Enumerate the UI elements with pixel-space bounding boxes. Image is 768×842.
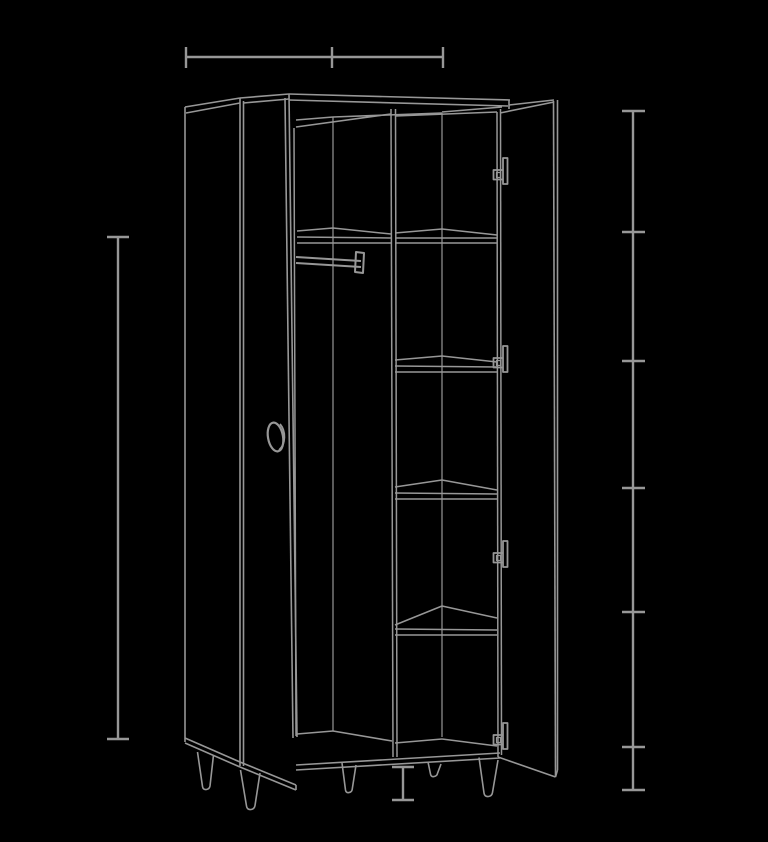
- door-handle-4-segment: [503, 723, 508, 749]
- shelf-4-segment: [395, 629, 497, 630]
- clothes-rail-segment: [355, 252, 364, 273]
- left-side-and-door-segment: [240, 94, 289, 98]
- right-door-segment: [509, 100, 554, 105]
- carcass-top-segment: [442, 107, 502, 112]
- shelf-top-left: [297, 228, 391, 243]
- right-door-segment: [498, 757, 556, 777]
- base-and-floor-segment: [297, 731, 333, 734]
- clothes-rail-segment: [296, 263, 361, 267]
- left-side-and-door-segment: [244, 99, 290, 103]
- door-handle-2-segment: [497, 361, 501, 366]
- left-side-and-door-segment: [186, 103, 240, 113]
- dimension-right-scale: [622, 111, 645, 790]
- shelf-1: [395, 229, 497, 243]
- shelf-3-segment: [395, 493, 497, 494]
- shelf-top-left-segment: [297, 237, 391, 238]
- clothes-rail-segment: [296, 257, 361, 261]
- door-knob: [266, 421, 286, 452]
- interior-verticals-segment: [294, 128, 296, 736]
- base-and-floor-segment: [333, 731, 392, 741]
- dimension-top-width: [186, 47, 443, 68]
- shelf-4-segment: [395, 606, 497, 625]
- left-side-and-door: [185, 94, 297, 790]
- interior-verticals-segment: [396, 109, 398, 757]
- carcass-top-segment: [289, 100, 508, 106]
- carcass-top-segment: [296, 117, 333, 120]
- interior-verticals: [294, 109, 502, 757]
- door-handle-1-segment: [497, 173, 501, 178]
- dimension-left-height: [107, 237, 129, 739]
- legs-segment: [198, 752, 214, 790]
- legs-segment: [479, 758, 498, 797]
- legs-segment: [241, 770, 261, 810]
- left-side-and-door-segment: [185, 98, 240, 107]
- right-door-segment: [554, 101, 556, 776]
- carcass-top: [289, 94, 510, 127]
- shelf-2: [395, 356, 497, 372]
- door-handle-4: [494, 723, 508, 749]
- left-side-and-door-segment: [240, 767, 296, 790]
- base-and-floor: [296, 731, 500, 770]
- interior-verticals-segment: [391, 109, 393, 757]
- carcass-top-segment: [289, 94, 510, 100]
- shelf-2-segment: [395, 366, 497, 367]
- shelf-3: [395, 480, 497, 499]
- door-handle-2-segment: [503, 346, 508, 372]
- door-handle-3-segment: [497, 556, 501, 561]
- clothes-rail: [296, 252, 364, 273]
- door-handle-3-segment: [503, 541, 508, 567]
- drawing-canvas: [0, 0, 768, 842]
- door-handle-1-segment: [503, 158, 508, 184]
- interior-verticals-segment: [501, 109, 502, 755]
- right-door: [498, 100, 558, 777]
- shelf-3-segment: [395, 480, 497, 490]
- shelf-4: [395, 606, 497, 635]
- legs-segment: [428, 762, 441, 777]
- shelf-top-left-segment: [297, 228, 391, 234]
- left-side-and-door-segment: [285, 98, 293, 738]
- shelf-1-segment: [395, 229, 497, 235]
- interior-verticals-segment: [497, 112, 498, 757]
- base-and-floor-segment: [442, 739, 497, 746]
- wardrobe-line-drawing: [0, 0, 768, 842]
- base-and-floor-segment: [395, 739, 442, 743]
- dimension-leg-height: [392, 767, 414, 800]
- left-side-and-door-segment: [240, 762, 296, 785]
- shelf-2-segment: [395, 356, 497, 362]
